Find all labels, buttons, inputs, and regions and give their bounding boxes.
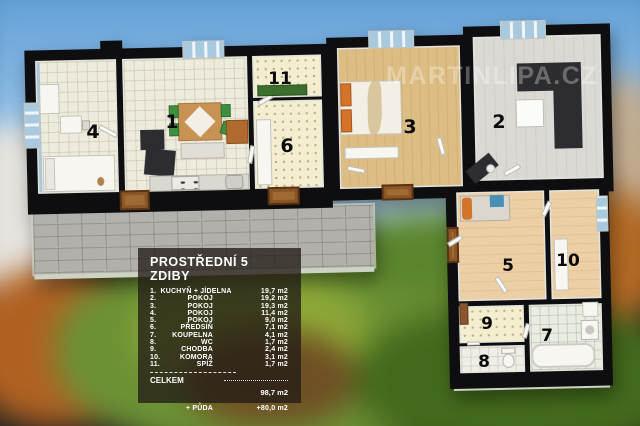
bed-headboard-room3 bbox=[340, 83, 352, 106]
watermark-text: MARTINLIPA.CZ bbox=[386, 62, 598, 91]
coffee-table bbox=[516, 99, 545, 128]
legend-row-10: 10.KOMORA3,1 m2 bbox=[150, 354, 288, 361]
dresser-room3 bbox=[345, 146, 399, 159]
door-leaf-room8 bbox=[467, 341, 480, 345]
screenshot-root: 1 2 3 4 5 6 7 8 9 10 11 MARTINLIPA.CZ PR… bbox=[0, 0, 640, 426]
bath-sink bbox=[582, 302, 598, 317]
room-label-4: 4 bbox=[86, 121, 99, 143]
bathtub bbox=[531, 343, 596, 368]
tv-unit-b bbox=[144, 148, 176, 176]
chair-dining-3 bbox=[221, 104, 231, 117]
legend-row-11: 11.SPÍŽ1,7 m2 bbox=[150, 361, 288, 368]
washing-machine bbox=[581, 320, 599, 340]
window-room3 bbox=[368, 30, 414, 49]
sink bbox=[225, 175, 243, 189]
legend-row-8: 8.WC1,7 m2 bbox=[150, 339, 288, 346]
pillow-room4 bbox=[45, 158, 56, 190]
room-label-8: 8 bbox=[478, 352, 490, 372]
entrance-door-hall bbox=[267, 186, 299, 205]
entrance-door-room3 bbox=[381, 184, 413, 201]
entrance-door-main bbox=[120, 190, 150, 211]
bench-room1 bbox=[180, 142, 224, 159]
legend-row-2: 2.POKOJ19,2 m2 bbox=[150, 295, 288, 302]
legend-row-3: 3.POKOJ19,3 m2 bbox=[150, 303, 288, 310]
room-label-11: 11 bbox=[268, 69, 292, 89]
legend-row-1: 1.KUCHYŇ + JÍDELNA19,7 m2 bbox=[150, 288, 288, 295]
room-label-3: 3 bbox=[403, 116, 416, 138]
cabinet-room9 bbox=[459, 303, 468, 325]
legend-row-4: 4.POKOJ11,4 m2 bbox=[150, 310, 288, 317]
desk-room4 bbox=[60, 115, 82, 133]
legend-attic-value: +80,0 m2 bbox=[213, 405, 288, 412]
throw-blue bbox=[490, 195, 504, 207]
toilet-bowl bbox=[502, 354, 514, 368]
room-label-10: 10 bbox=[556, 251, 580, 271]
room-label-1: 1 bbox=[165, 111, 178, 133]
chimney bbox=[100, 40, 122, 52]
legend-rows: 1.KUCHYŇ + JÍDELNA19,7 m2 2.POKOJ19,2 m2… bbox=[150, 288, 288, 368]
legend-total-dots bbox=[224, 380, 288, 381]
stove bbox=[171, 176, 199, 191]
blanket-room3 bbox=[367, 82, 382, 134]
room-label-9: 9 bbox=[481, 314, 493, 334]
legend-attic-row: + PŮDA +80,0 m2 bbox=[150, 405, 288, 412]
teddy-bear bbox=[97, 177, 104, 186]
cabinet-room1 bbox=[226, 120, 249, 144]
legend-divider bbox=[150, 372, 236, 373]
legend-panel: PROSTŘEDNÍ 5 ZDIBY 1.KUCHYŇ + JÍDELNA19,… bbox=[138, 248, 301, 403]
window-room1 bbox=[182, 40, 224, 59]
legend-row-6: 6.PŘEDSÍŇ7,1 m2 bbox=[150, 324, 288, 331]
window-room10 bbox=[596, 195, 609, 231]
legend-total-value: 98,7 m2 bbox=[150, 388, 288, 397]
window-room4 bbox=[23, 102, 40, 148]
window-room2 bbox=[500, 20, 546, 40]
bed-headboard-room3-b bbox=[341, 109, 353, 132]
room-label-7: 7 bbox=[541, 326, 553, 346]
legend-attic-label: + PŮDA bbox=[164, 405, 213, 412]
fridge bbox=[256, 119, 272, 185]
cushion-orange bbox=[462, 198, 472, 220]
legend-row-5: 5.POKOJ9,0 m2 bbox=[150, 317, 288, 324]
room-label-6: 6 bbox=[280, 135, 293, 157]
tv-unit-a bbox=[140, 130, 164, 151]
room-label-2: 2 bbox=[492, 111, 505, 133]
legend-total-label: CELKEM bbox=[150, 376, 184, 385]
legend-row-9: 9.CHODBA2,4 m2 bbox=[150, 346, 288, 353]
legend-total-row: CELKEM bbox=[150, 376, 288, 385]
legend-title: PROSTŘEDNÍ 5 bbox=[150, 256, 288, 270]
wardrobe-room4 bbox=[39, 84, 60, 114]
legend-row-7: 7.KOUPELNA4,1 m2 bbox=[150, 332, 288, 339]
legend-subtitle: ZDIBY bbox=[150, 270, 288, 284]
room-label-5: 5 bbox=[502, 256, 514, 276]
